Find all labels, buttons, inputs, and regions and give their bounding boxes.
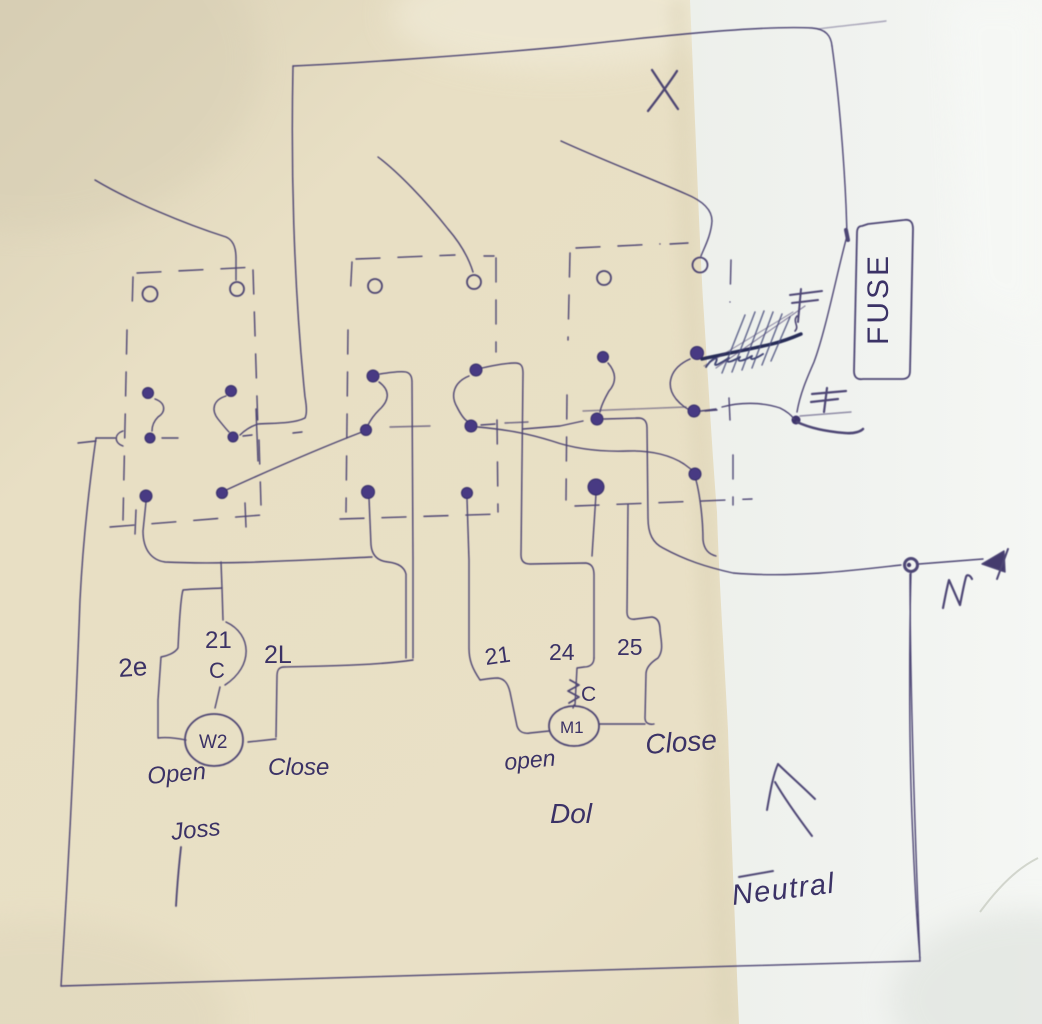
- svg-text:21: 21: [483, 641, 512, 670]
- svg-text:2L: 2L: [264, 641, 292, 669]
- svg-text:M1: M1: [560, 718, 584, 737]
- svg-text:Close: Close: [268, 754, 329, 781]
- svg-text:W2: W2: [199, 732, 228, 753]
- svg-text:C: C: [209, 658, 225, 683]
- svg-text:2e: 2e: [117, 651, 148, 683]
- svg-text:21: 21: [205, 627, 232, 654]
- svg-text:Joss: Joss: [169, 814, 222, 846]
- svg-text:FUSE: FUSE: [862, 253, 895, 345]
- svg-text:C: C: [581, 683, 596, 706]
- svg-text:25: 25: [617, 634, 643, 660]
- svg-text:Close: Close: [644, 724, 718, 760]
- svg-text:Dol: Dol: [550, 798, 593, 829]
- svg-text:24: 24: [549, 639, 575, 665]
- svg-text:Open: Open: [146, 758, 207, 790]
- svg-text:open: open: [503, 745, 556, 775]
